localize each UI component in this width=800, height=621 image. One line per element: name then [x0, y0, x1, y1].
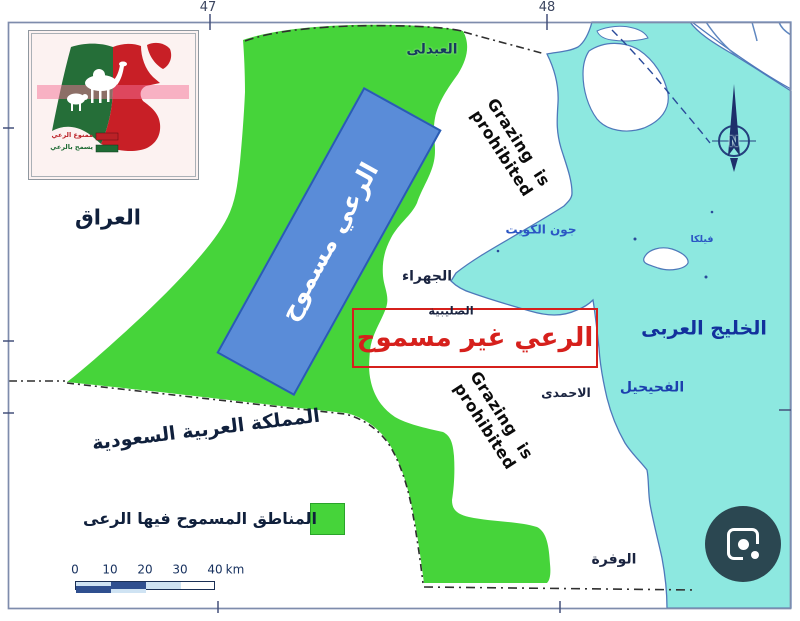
scale-unit: km	[226, 563, 245, 576]
inset-legend-prohibited-label: ممنوع الرعي	[43, 131, 93, 141]
label-jahra: الجهراء	[402, 269, 452, 284]
map-speck	[711, 211, 714, 214]
scale-tick-10: 10	[102, 563, 117, 576]
inset-red-blob	[147, 43, 171, 69]
grid-label-47: 47	[200, 1, 217, 15]
scale-tick-40: 40	[207, 563, 222, 576]
inset-legend-green-swatch	[96, 145, 118, 152]
scale-tick-30: 30	[172, 563, 187, 576]
label-arabian-gulf: الخليج العربى	[641, 319, 767, 340]
inset-legend-allowed-label: يسمح بالرعي	[43, 143, 93, 153]
inset-map: ممنوع الرعي يسمح بالرعي	[28, 30, 199, 180]
map-page: الرعي مسموح الرعي غير مسموح 47 48 العراق…	[0, 0, 800, 621]
lens-center-dot-icon	[738, 539, 749, 550]
map-speck	[634, 238, 637, 241]
lens-dot-bottomright-icon	[751, 551, 759, 559]
scale-tick-20: 20	[137, 563, 152, 576]
inset-canvas	[29, 31, 198, 179]
grid-label-48: 48	[539, 1, 556, 15]
label-failaka: فيلكا	[690, 235, 713, 245]
grazing-not-allowed-label: الرعي غير مسموح	[357, 323, 594, 353]
label-ahmadi: الاحمدى	[541, 386, 591, 400]
label-kuwait-bay: جون الكويت	[506, 223, 577, 236]
grazing-not-allowed-box: الرعي غير مسموح	[352, 308, 598, 368]
label-fahaheel: الفحيحيل	[620, 380, 684, 395]
scale-bar	[75, 581, 215, 590]
label-iraq: العراق	[75, 206, 141, 229]
label-abdali: العبدلى	[406, 42, 457, 57]
inset-legend-red-swatch	[96, 133, 118, 140]
legend-label: المناطق المسموح فيها الرعى	[83, 510, 317, 528]
scale-tick-0: 0	[71, 563, 79, 576]
label-sulaibiya: الصليبية	[428, 305, 473, 318]
map-speck	[497, 250, 500, 253]
label-wafra: الوفرة	[592, 552, 637, 567]
compass-north-letter: N	[729, 136, 740, 150]
map-speck	[705, 276, 708, 279]
google-lens-button[interactable]	[705, 506, 781, 582]
